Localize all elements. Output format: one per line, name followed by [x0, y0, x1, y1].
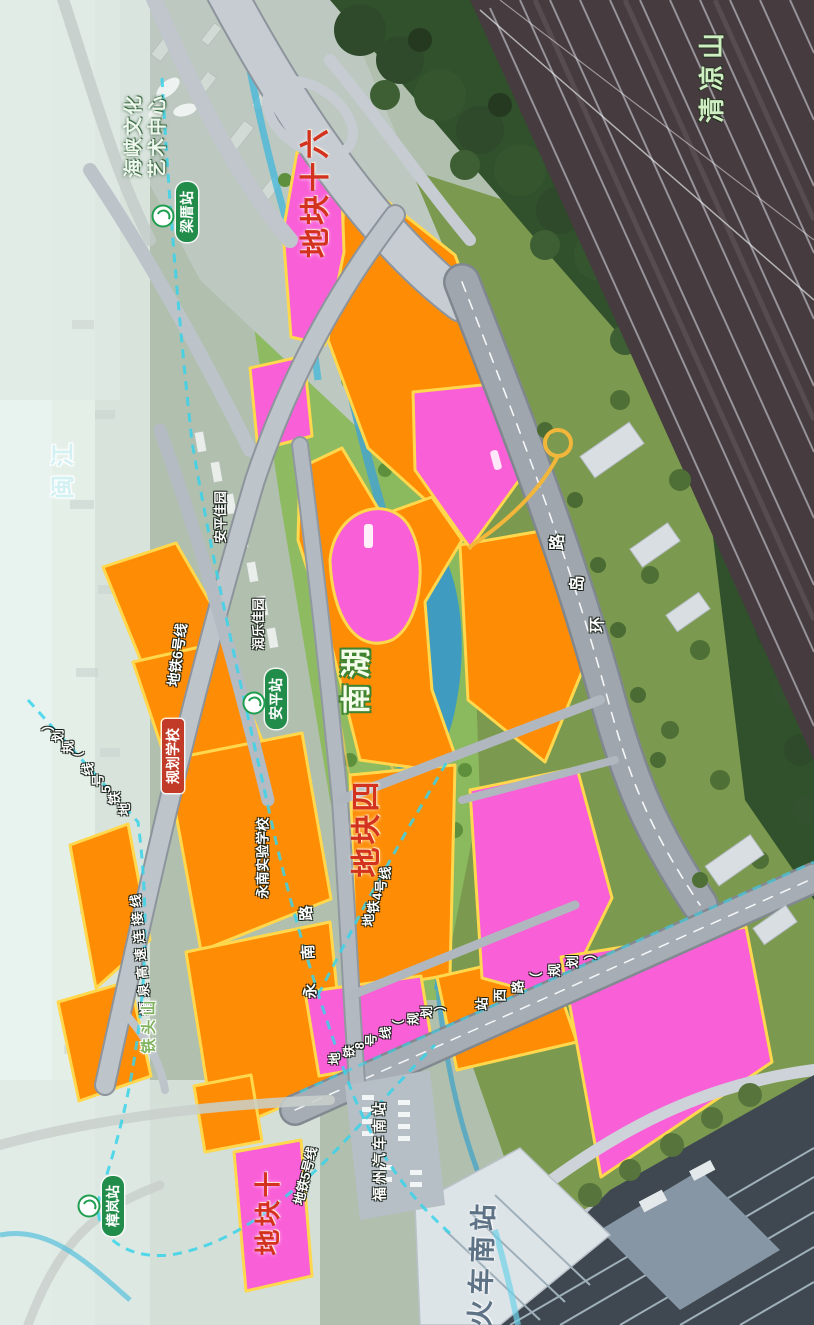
label-tietou-mountain: 铁头山 [141, 996, 160, 1053]
label-bus-station: 福州汽车南站 [371, 1099, 389, 1201]
label-south-lake: 南湖 [338, 642, 376, 714]
metro-logo-glyph [80, 1197, 98, 1215]
label-plot-10: 地块十 [252, 1168, 285, 1255]
metro-icon [152, 205, 175, 228]
map-canvas [0, 0, 814, 1325]
label-min-river: 闽江 [49, 435, 79, 499]
station-badge-zhanglan: 樟岚站 [104, 1176, 124, 1236]
label-qingliang-mountain: 清凉山 [696, 27, 729, 123]
metro-logo-glyph [245, 694, 263, 712]
planning-map: 清凉山 海峡文化 艺术中心 梁厝站 地块十六 闽江 安平佳园 地铁6号线 润乐佳… [0, 0, 814, 1325]
label-runle-compound: 润乐佳园 [251, 598, 267, 650]
label-anping-compound: 安平佳园 [213, 491, 229, 543]
label-railway-station: 福州火车南站 [462, 1198, 502, 1325]
label-plot-4: 地块四 [348, 779, 386, 878]
label-yongnan-school: 永南实验学校 [256, 818, 273, 899]
bus-station-area [345, 1070, 445, 1220]
metro-icon [243, 692, 266, 715]
label-plot-16: 地块十六 [297, 126, 335, 258]
label-art-center: 海峡文化 艺术中心 [122, 94, 170, 178]
station-badge-liangcuo: 梁厝站 [178, 182, 198, 242]
metro-logo-glyph [154, 207, 172, 225]
badge-planned-school: 规划学校 [164, 719, 184, 793]
station-badge-anping: 安平站 [267, 669, 287, 729]
metro-icon [78, 1195, 101, 1218]
